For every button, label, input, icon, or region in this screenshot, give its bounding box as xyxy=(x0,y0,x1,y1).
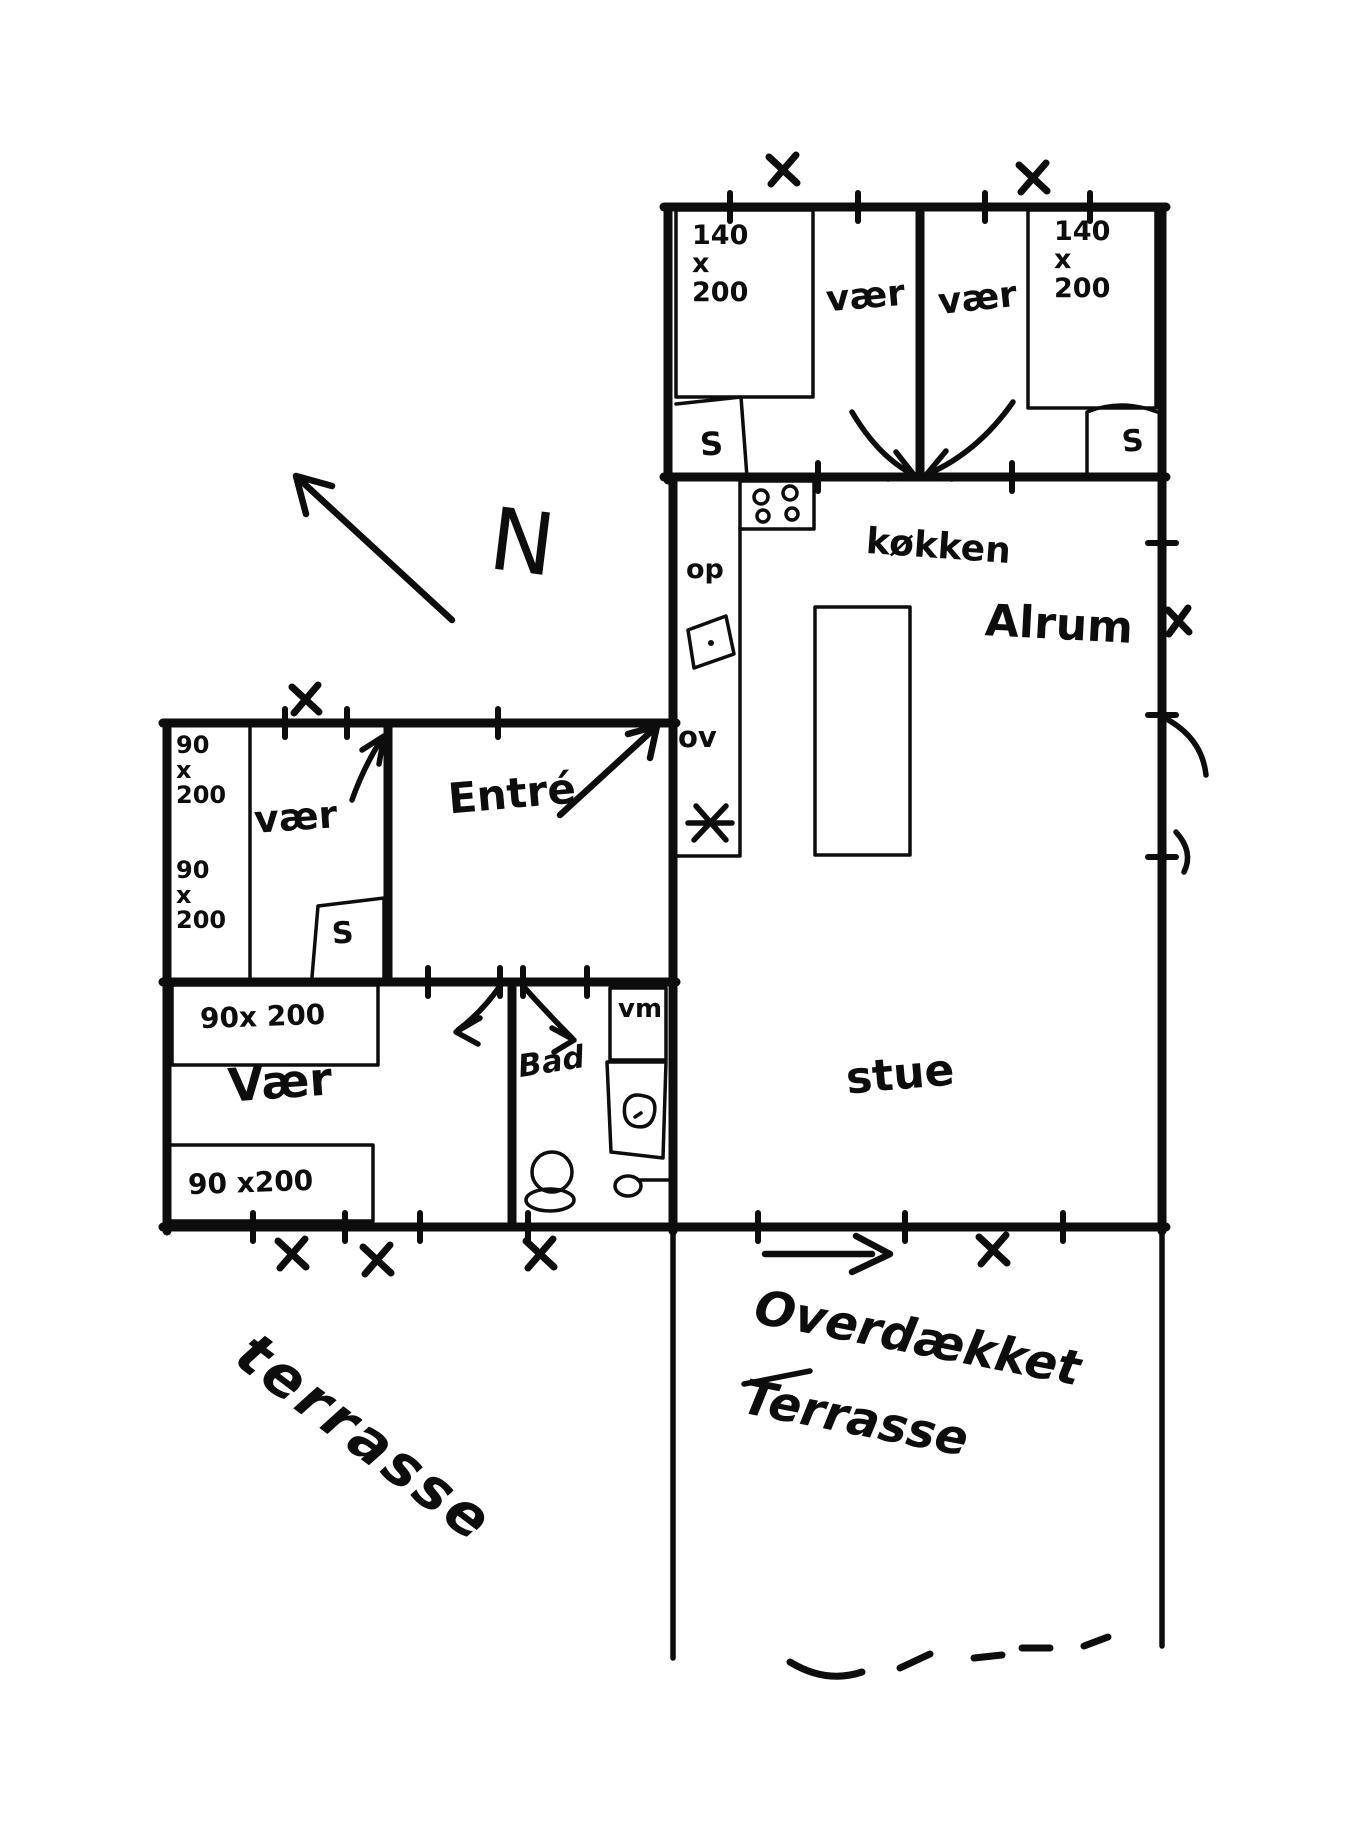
interior-walls xyxy=(388,207,920,1227)
room-label-stue: stue xyxy=(844,1047,956,1102)
north-arrow xyxy=(296,476,452,620)
floorplan-sketch: N 140 x 200 vær S vær 140 x 200 S køkken… xyxy=(0,0,1369,1839)
stove-icon xyxy=(740,481,814,529)
bed-size-w-bottom: 90 x 200 xyxy=(176,858,226,934)
counter-label-op: op xyxy=(686,556,724,584)
kitchen-sink-icon xyxy=(688,616,734,668)
bed-size-w-top: 90 x 200 xyxy=(176,733,226,809)
wardrobe-label-w: S xyxy=(331,917,355,950)
room-label-alrum: Alrum xyxy=(984,598,1134,652)
bathroom-sink-icon xyxy=(607,1062,666,1158)
wardrobe-label-ne: S xyxy=(1120,425,1145,459)
room-label-bedroom-nw: vær xyxy=(825,275,907,320)
room-label-entre: Entré xyxy=(446,767,577,822)
bed-size-ne: 140 x 200 xyxy=(1054,218,1110,303)
bed-size-sw-top: 90x 200 xyxy=(200,1000,326,1034)
window-x-icons xyxy=(278,155,1189,1274)
terrace-exit-arrow xyxy=(765,1236,890,1272)
washing-machine-label: vm xyxy=(618,996,662,1023)
bed-size-sw-bottom: 90 x200 xyxy=(188,1166,314,1200)
bathroom-small-fixture xyxy=(615,1176,668,1196)
room-label-bedroom-ne: vær xyxy=(936,276,1018,322)
dining-table xyxy=(815,607,910,855)
star-symbol-icon xyxy=(688,806,732,840)
north-label: N xyxy=(485,494,560,591)
room-label-bedroom-w: vær xyxy=(253,795,339,841)
wardrobe-label-nw: S xyxy=(699,427,724,462)
room-label-bedroom-sw: Vær xyxy=(226,1054,333,1109)
window-ticks xyxy=(253,193,1176,1241)
bed-size-nw: 140 x 200 xyxy=(692,222,748,307)
toilet-icon xyxy=(526,1152,574,1211)
counter-label-ov: ov xyxy=(678,722,717,752)
terrace-dashed-boundary xyxy=(790,1637,1108,1676)
